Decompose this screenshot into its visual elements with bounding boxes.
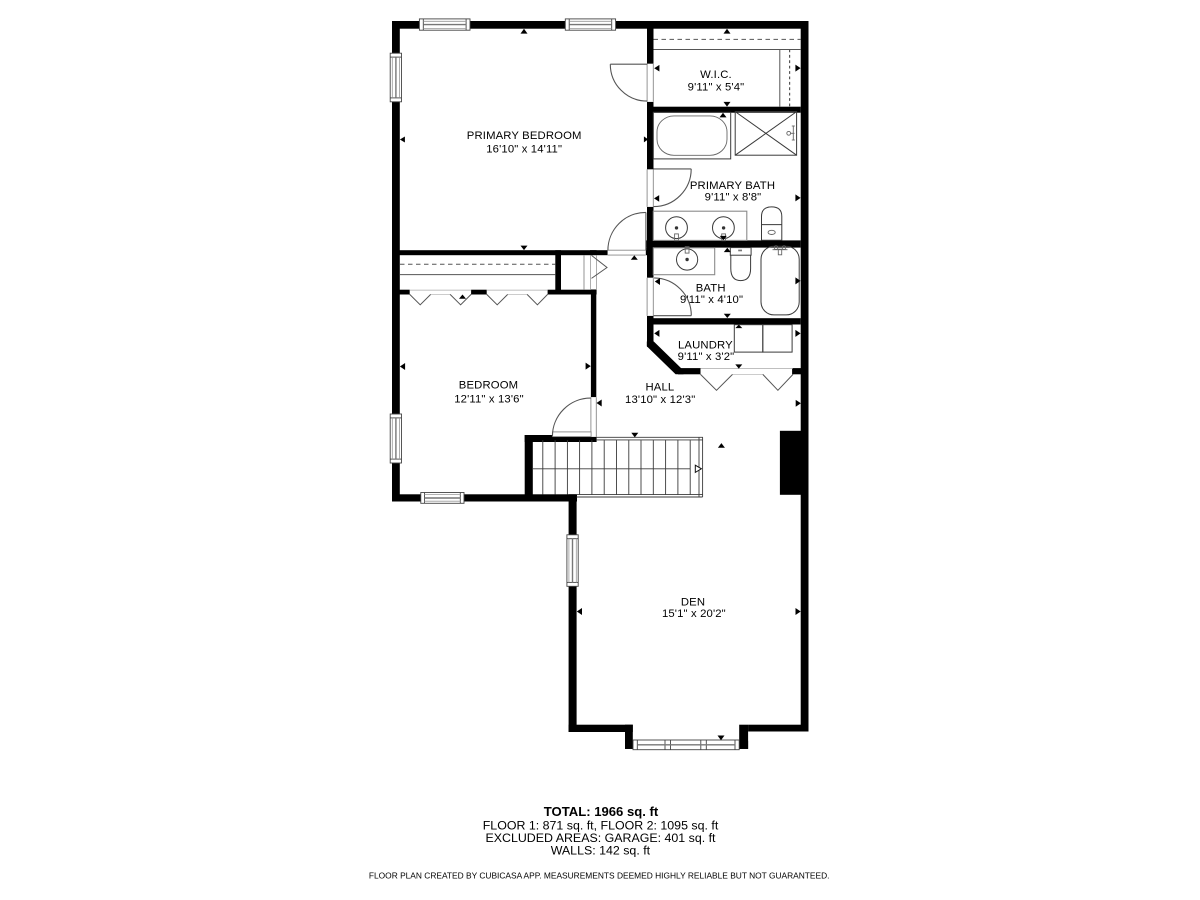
svg-text:15'1" x 20'2": 15'1" x 20'2" bbox=[662, 608, 726, 620]
svg-text:13'10" x 12'3": 13'10" x 12'3" bbox=[625, 394, 695, 406]
svg-text:FLOOR PLAN CREATED BY CUBICASA: FLOOR PLAN CREATED BY CUBICASA APP. MEAS… bbox=[369, 870, 830, 880]
svg-text:DEN: DEN bbox=[681, 597, 705, 609]
svg-text:16'10" x 14'11": 16'10" x 14'11" bbox=[486, 144, 562, 156]
svg-text:BATH: BATH bbox=[696, 282, 726, 294]
svg-text:9'11" x 8'8": 9'11" x 8'8" bbox=[705, 192, 762, 204]
svg-text:9'11" x 5'4": 9'11" x 5'4" bbox=[688, 82, 745, 94]
svg-text:HALL: HALL bbox=[645, 382, 674, 394]
svg-text:PRIMARY BATH: PRIMARY BATH bbox=[690, 180, 775, 192]
svg-text:TOTAL: 1966 sq. ft: TOTAL: 1966 sq. ft bbox=[544, 804, 659, 819]
svg-text:BEDROOM: BEDROOM bbox=[459, 379, 518, 391]
svg-text:W.I.C.: W.I.C. bbox=[700, 69, 732, 81]
svg-text:LAUNDRY: LAUNDRY bbox=[678, 339, 733, 351]
svg-text:WALLS: 142 sq. ft: WALLS: 142 sq. ft bbox=[551, 843, 651, 857]
svg-text:12'11" x 13'6": 12'11" x 13'6" bbox=[454, 393, 524, 405]
svg-text:9'11" x 3'2": 9'11" x 3'2" bbox=[678, 351, 735, 363]
svg-text:9'11" x 4'10": 9'11" x 4'10" bbox=[680, 294, 743, 306]
svg-text:PRIMARY BEDROOM: PRIMARY BEDROOM bbox=[467, 130, 582, 142]
